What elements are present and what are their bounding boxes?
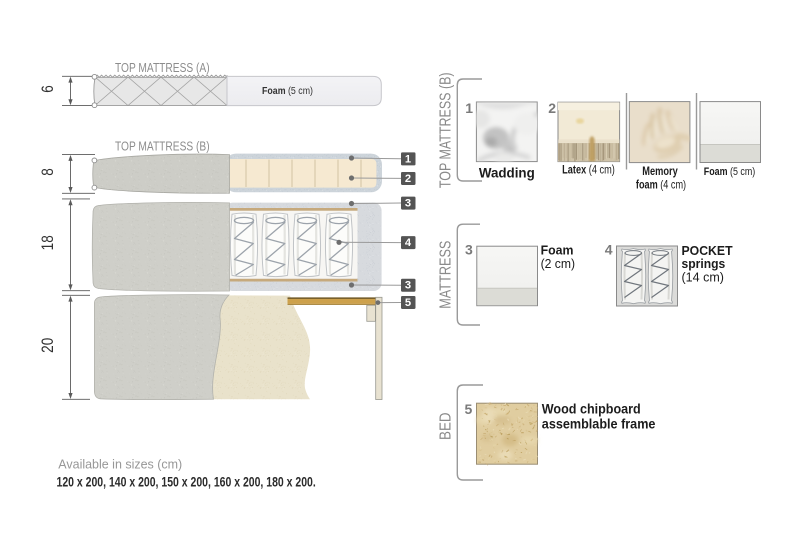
svg-text:3: 3 (465, 241, 473, 257)
svg-text:Foam (5 cm): Foam (5 cm) (704, 166, 755, 178)
svg-text:BED: BED (438, 412, 455, 440)
svg-text:18: 18 (39, 235, 58, 250)
svg-text:assemblable frame: assemblable frame (542, 416, 656, 432)
svg-text:4: 4 (605, 241, 613, 257)
svg-text:Latex (4 cm): Latex (4 cm) (562, 163, 615, 177)
svg-text:20: 20 (39, 338, 58, 353)
svg-text:2: 2 (548, 100, 556, 116)
svg-text:5: 5 (405, 297, 411, 309)
svg-text:8: 8 (39, 168, 58, 176)
svg-text:(2 cm): (2 cm) (541, 256, 575, 270)
svg-text:Wood chipboard: Wood chipboard (542, 401, 641, 417)
svg-text:120 x 200, 140 x 200, 150 x 20: 120 x 200, 140 x 200, 150 x 200, 160 x 2… (57, 474, 316, 490)
svg-text:3: 3 (405, 198, 411, 210)
svg-text:6: 6 (39, 85, 58, 93)
svg-text:1: 1 (405, 153, 411, 165)
svg-text:foam (4 cm): foam (4 cm) (636, 179, 686, 191)
svg-text:Foam (5 cm): Foam (5 cm) (262, 85, 313, 97)
svg-text:2: 2 (405, 173, 411, 185)
svg-text:TOP MATTRESS (B): TOP MATTRESS (B) (115, 141, 210, 154)
svg-text:Available in sizes (cm): Available in sizes (cm) (58, 456, 182, 471)
svg-text:Wadding: Wadding (479, 165, 535, 180)
svg-text:TOP MATTRESS (A): TOP MATTRESS (A) (115, 62, 210, 75)
svg-text:5: 5 (465, 401, 473, 417)
svg-text:(14 cm): (14 cm) (682, 269, 724, 284)
svg-text:1: 1 (465, 100, 473, 116)
svg-text:TOP MATTRESS (B): TOP MATTRESS (B) (436, 72, 454, 188)
svg-text:Foam: Foam (541, 243, 574, 257)
svg-text:MATTRESS: MATTRESS (437, 241, 454, 309)
svg-text:4: 4 (405, 237, 412, 249)
svg-text:3: 3 (405, 280, 411, 292)
svg-text:Memory: Memory (642, 166, 678, 178)
